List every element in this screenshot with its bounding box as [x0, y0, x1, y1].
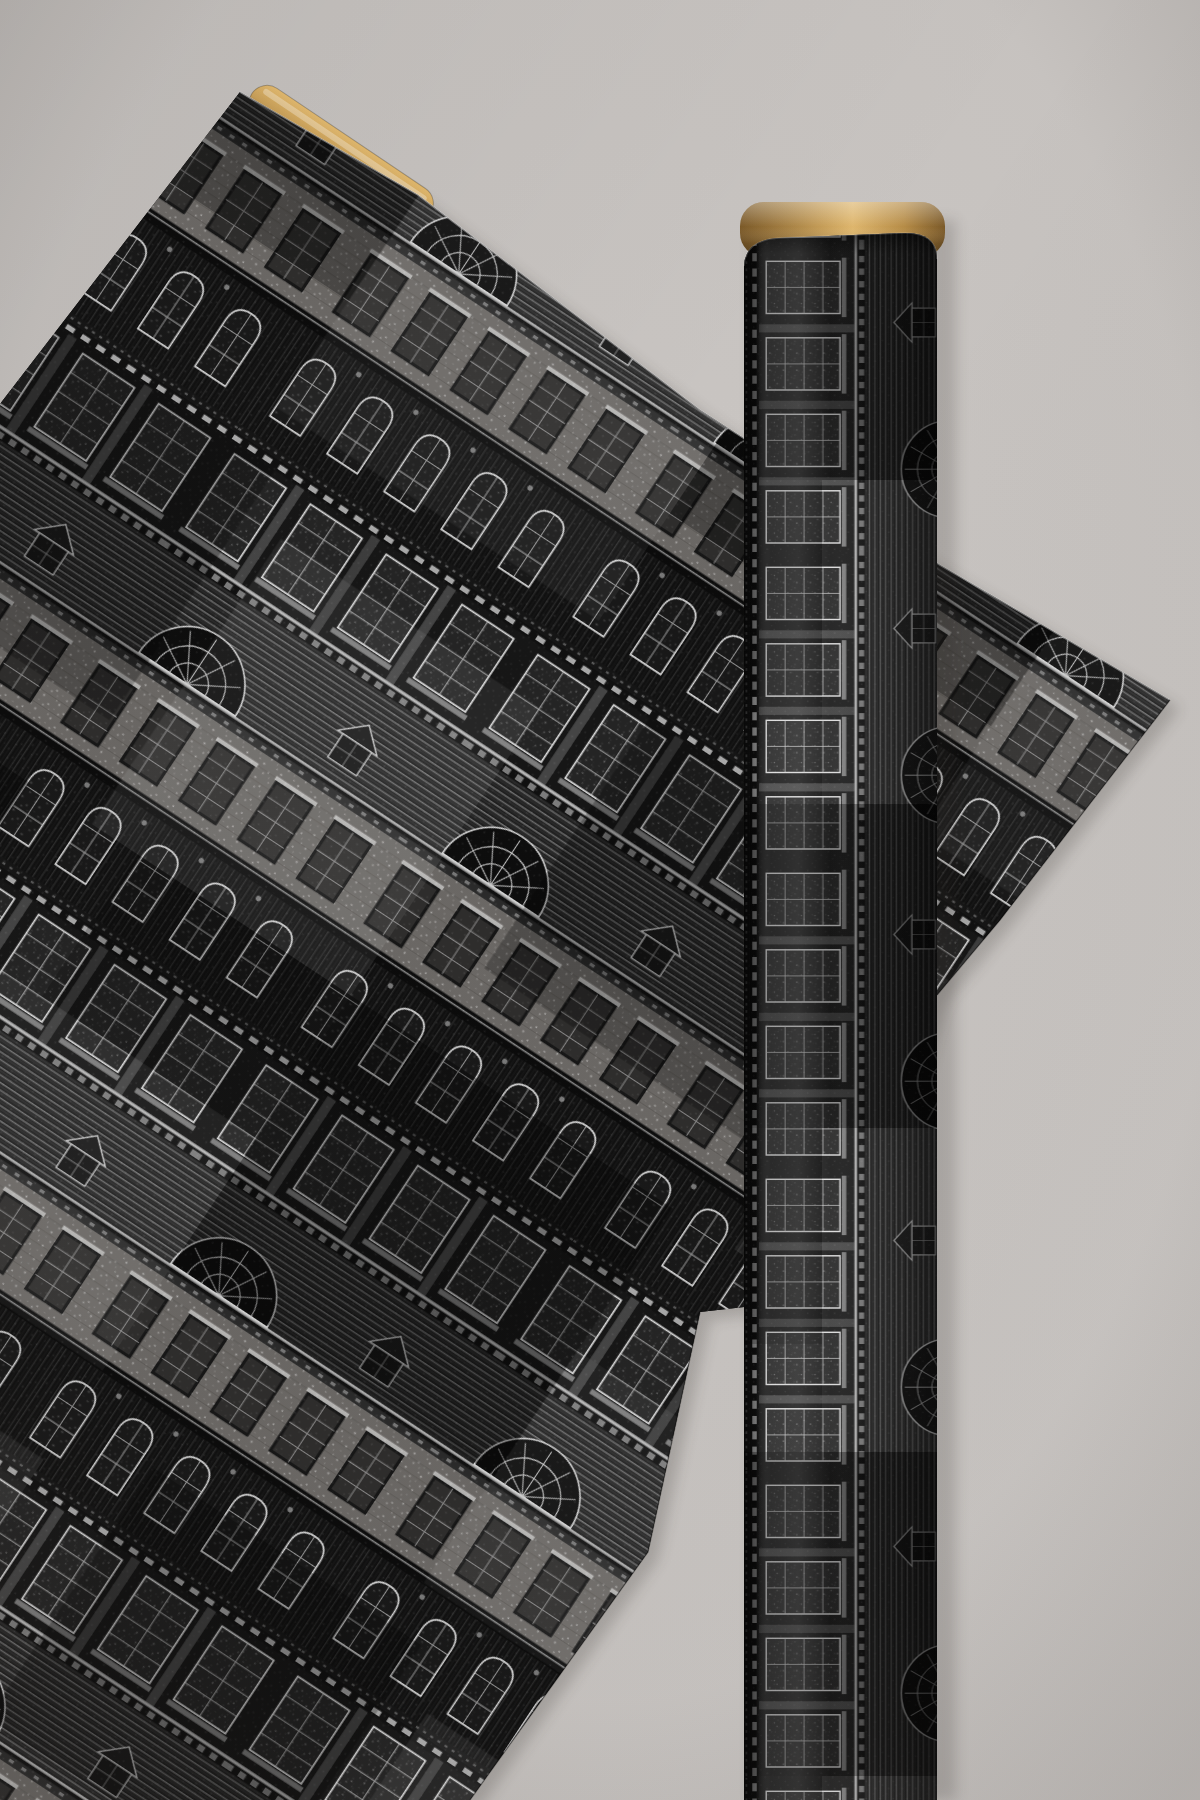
- product-mockup-scene: [0, 0, 1200, 1800]
- vignette-overlay: [0, 0, 1200, 1800]
